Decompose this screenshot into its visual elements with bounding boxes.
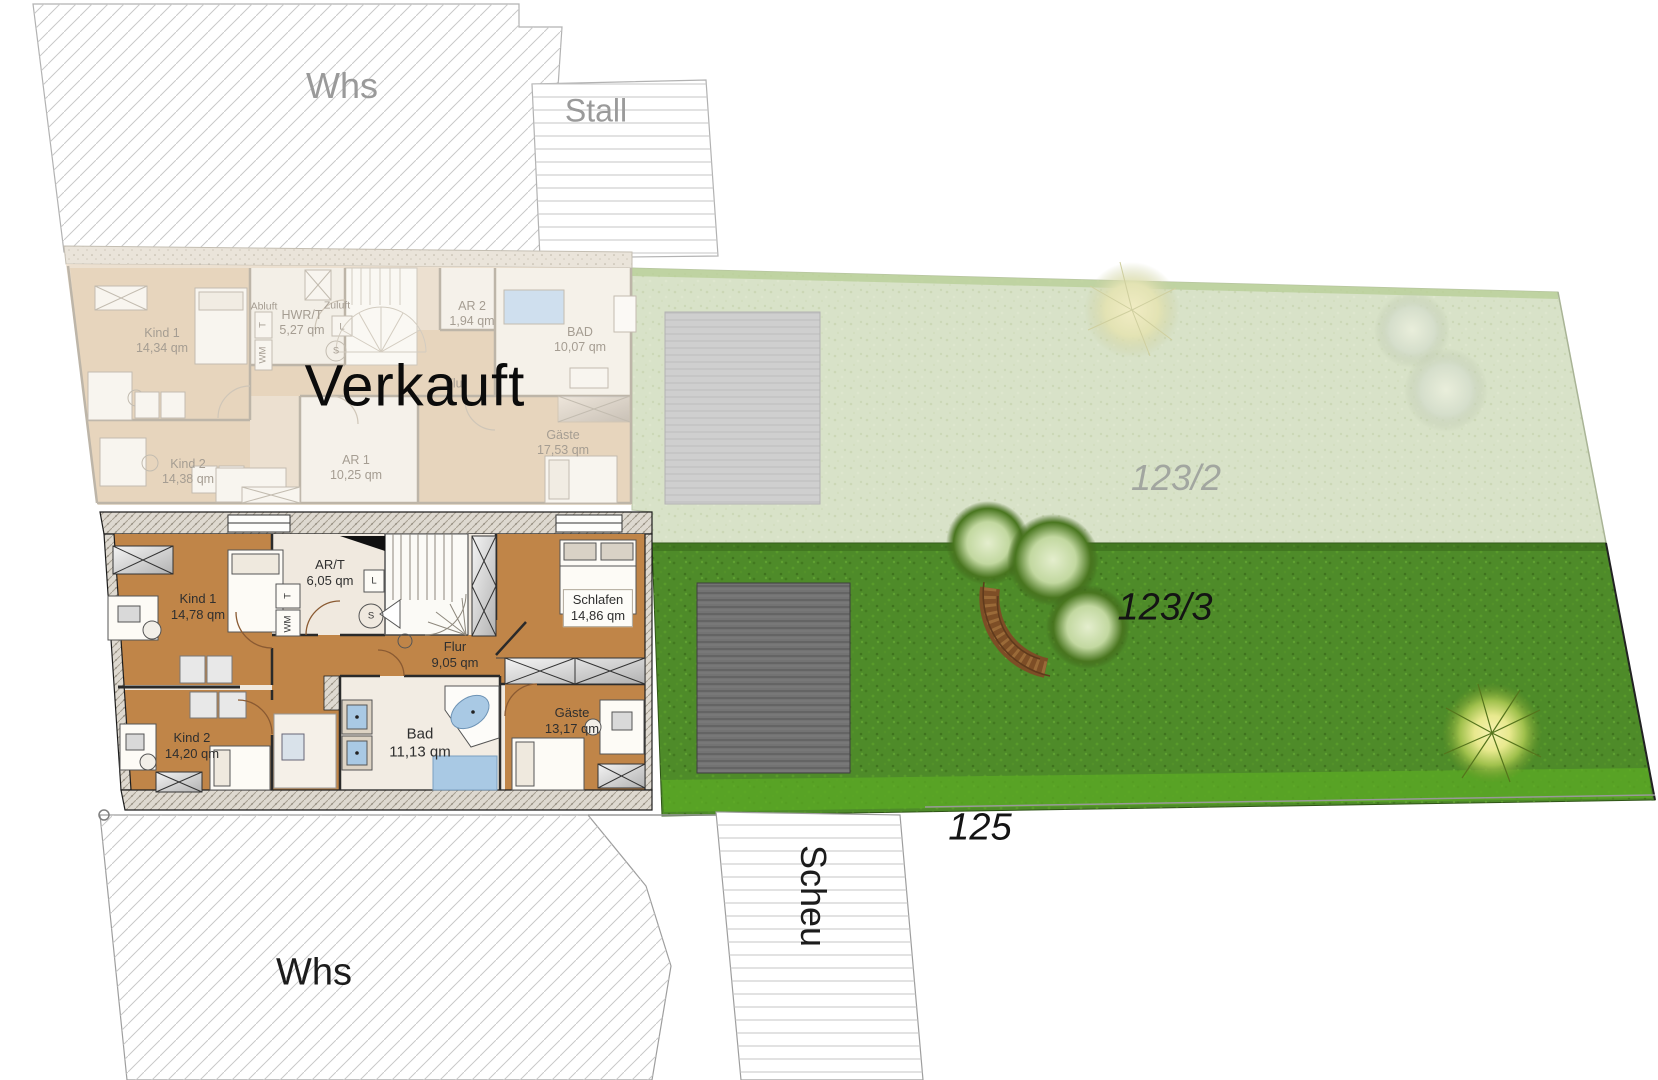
garden-123-3 xyxy=(652,501,1655,816)
patio-faded xyxy=(665,312,820,504)
appliance-label-s-active: S xyxy=(368,611,374,622)
room-label-sold-bad: BAD10,07 qm xyxy=(554,325,606,356)
room-label-active-bad: Bad11,13 qm xyxy=(389,726,450,763)
appliance-label-l-sold: L xyxy=(339,322,344,333)
vent-label-zuluft: Zuluft xyxy=(324,300,350,313)
building-whs-top xyxy=(33,4,562,252)
parcel-label-125: 125 xyxy=(948,807,1011,850)
room-label-active-schlafen: Schlafen14,86 qm xyxy=(563,589,633,627)
room-label-sold-gaeste: Gäste17,53 qm xyxy=(537,428,589,459)
building-label-scheu: Scheu xyxy=(792,845,834,947)
building-label-whs-top: Whs xyxy=(306,65,378,107)
room-label-active-art: AR/T6,05 qm xyxy=(307,557,354,589)
sold-overlay-label: Verkauft xyxy=(305,353,526,420)
active-floor-plan xyxy=(100,512,652,810)
room-label-sold-ar1: AR 110,25 qm xyxy=(330,453,382,484)
appliance-label-washer-active: WM xyxy=(283,616,294,633)
tree-active xyxy=(1442,683,1542,783)
appliance-label-l-active: L xyxy=(371,576,376,587)
room-label-sold-kind1: Kind 114,34 qm xyxy=(136,326,188,357)
building-whs-bottom xyxy=(100,815,671,1080)
appliance-label-dryer-active: T xyxy=(283,593,294,599)
parcel-label-123-3: 123/3 xyxy=(1117,587,1212,630)
patio-active xyxy=(697,583,850,773)
room-label-active-gaeste: Gäste13,17 qm xyxy=(545,705,599,737)
parcel-label-123-2: 123/2 xyxy=(1131,457,1221,499)
room-label-sold-kind2: Kind 214,38 qm xyxy=(162,457,214,488)
appliance-label-dryer-sold: T xyxy=(258,322,269,328)
tree-faded xyxy=(1084,262,1180,358)
room-label-sold-hwr: HWR/T5,27 qm xyxy=(279,308,324,339)
appliance-label-washer-sold: WM xyxy=(258,347,269,364)
vent-label-abluft: Abluft xyxy=(251,301,278,314)
garden-123-2 xyxy=(632,262,1606,543)
site-plan-canvas: Kind 114,34 qm Kind 214,38 qm HWR/T5,27 … xyxy=(0,0,1658,1080)
room-label-active-kind2: Kind 214,20 qm xyxy=(165,730,219,762)
building-label-stall: Stall xyxy=(565,93,627,130)
room-label-sold-ar2: AR 21,94 qm xyxy=(449,299,494,330)
room-label-active-kind1: Kind 114,78 qm xyxy=(171,591,225,623)
room-label-active-flur: Flur9,05 qm xyxy=(432,639,479,671)
building-label-whs-bottom: Whs xyxy=(276,952,352,995)
